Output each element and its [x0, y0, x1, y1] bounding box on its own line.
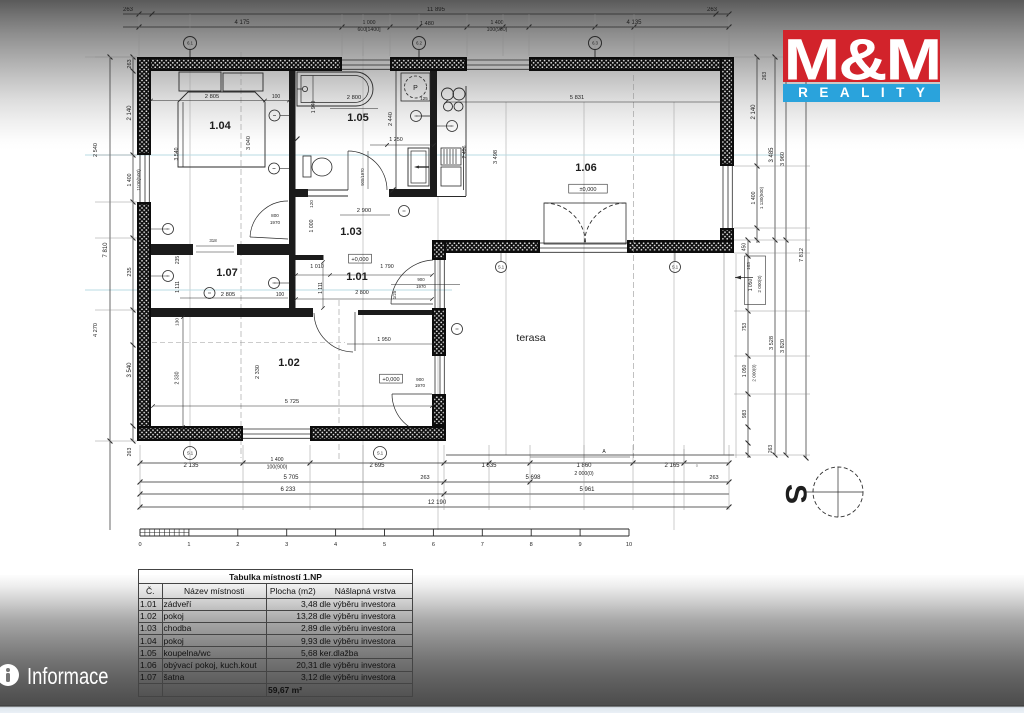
svg-text:5 705: 5 705 — [283, 475, 299, 481]
svg-text:1.06: 1.06 — [575, 162, 596, 174]
svg-text:1 050: 1 050 — [748, 279, 754, 292]
svg-text:3 540: 3 540 — [127, 362, 133, 378]
svg-text:100: 100 — [276, 292, 285, 298]
svg-text:2 135: 2 135 — [183, 463, 199, 469]
svg-text:1 250: 1 250 — [389, 137, 403, 143]
svg-text:100: 100 — [272, 94, 281, 100]
svg-text:1970: 1970 — [270, 220, 281, 225]
svg-text:100(900): 100(900) — [267, 465, 288, 471]
svg-text:1 400: 1 400 — [751, 191, 757, 204]
svg-text:2: 2 — [236, 542, 239, 548]
svg-text:0: 0 — [138, 542, 141, 548]
svg-text:2 000(0): 2 000(0) — [752, 364, 757, 382]
svg-text:3 528: 3 528 — [769, 336, 775, 350]
svg-text:1 950: 1 950 — [377, 337, 391, 343]
svg-text:3 040: 3 040 — [246, 136, 252, 150]
svg-text:2 440: 2 440 — [388, 112, 394, 126]
svg-text:263: 263 — [127, 448, 133, 457]
svg-text:1.05: 1.05 — [347, 112, 368, 124]
svg-text:130: 130 — [175, 318, 181, 326]
svg-text:1 130(500): 1 130(500) — [759, 186, 764, 209]
svg-text:6: 6 — [432, 542, 435, 548]
svg-text:2 900: 2 900 — [357, 208, 372, 214]
svg-text:4: 4 — [334, 542, 337, 548]
svg-text:1970: 1970 — [415, 383, 426, 388]
svg-text:+0,000: +0,000 — [382, 377, 399, 383]
svg-text:263: 263 — [768, 445, 774, 454]
svg-text:2 165: 2 165 — [664, 463, 680, 469]
svg-text:5: 5 — [383, 542, 386, 548]
svg-text:263: 263 — [762, 72, 768, 81]
svg-text:2 330: 2 330 — [255, 365, 261, 379]
svg-text:2 800: 2 800 — [355, 290, 369, 296]
svg-text:+0,000: +0,000 — [351, 257, 368, 263]
svg-text:11 895: 11 895 — [427, 7, 446, 13]
svg-text:6.1: 6.1 — [187, 41, 193, 46]
svg-text:2 800: 2 800 — [347, 95, 362, 101]
svg-text:983: 983 — [742, 410, 748, 419]
svg-text:7 810: 7 810 — [103, 242, 109, 258]
svg-text:S.1: S.1 — [498, 265, 505, 270]
svg-text:9: 9 — [579, 542, 582, 548]
svg-text:1.03: 1.03 — [340, 226, 361, 238]
svg-text:263: 263 — [127, 59, 133, 68]
svg-text:±0,000: ±0,000 — [579, 187, 596, 193]
svg-text:3 498: 3 498 — [493, 150, 499, 164]
svg-text:2 805: 2 805 — [205, 94, 220, 100]
svg-text:263: 263 — [123, 7, 134, 13]
svg-text:235: 235 — [127, 267, 133, 276]
svg-text:6.2: 6.2 — [416, 41, 422, 46]
svg-text:1.07: 1.07 — [216, 267, 237, 279]
svg-text:1/25: 1/25 — [392, 290, 397, 299]
svg-text:1 480: 1 480 — [420, 21, 434, 27]
svg-text:S: S — [779, 484, 812, 504]
svg-text:terasa: terasa — [516, 332, 545, 344]
svg-text:P: P — [413, 85, 418, 92]
svg-text:○: ○ — [696, 463, 699, 468]
svg-text:1 400: 1 400 — [491, 20, 504, 26]
svg-text:1 400: 1 400 — [127, 173, 133, 186]
svg-text:125: 125 — [420, 96, 428, 101]
svg-text:4 270: 4 270 — [93, 323, 99, 337]
svg-text:1 860: 1 860 — [576, 463, 592, 469]
svg-text:S.1: S.1 — [377, 451, 384, 456]
svg-text:103: 103 — [746, 262, 751, 270]
svg-text:1100(500): 1100(500) — [136, 169, 142, 191]
svg-text:2 140: 2 140 — [127, 105, 133, 121]
svg-text:1.01: 1.01 — [346, 271, 367, 283]
svg-text:1 000: 1 000 — [309, 219, 315, 232]
svg-text:8: 8 — [530, 542, 533, 548]
svg-text:1 000: 1 000 — [363, 20, 376, 26]
svg-text:10: 10 — [626, 542, 632, 548]
svg-text:3 960: 3 960 — [780, 152, 786, 166]
svg-text:1970: 1970 — [416, 284, 426, 289]
svg-text:263: 263 — [420, 475, 429, 481]
svg-text:263: 263 — [709, 475, 718, 481]
svg-text:450: 450 — [742, 243, 748, 252]
svg-text:2 330: 2 330 — [175, 371, 181, 384]
svg-text:1 535: 1 535 — [481, 463, 497, 469]
svg-text:4 135: 4 135 — [626, 20, 642, 26]
svg-text:753: 753 — [742, 323, 748, 332]
svg-text:235: 235 — [175, 256, 181, 265]
svg-text:7 812: 7 812 — [799, 248, 805, 262]
svg-text:1 111: 1 111 — [175, 281, 181, 293]
svg-text:318: 318 — [209, 238, 217, 243]
svg-text:6.3: 6.3 — [592, 41, 598, 46]
svg-text:1.04: 1.04 — [209, 120, 231, 132]
svg-text:900: 900 — [417, 277, 425, 282]
svg-text:3 820: 3 820 — [780, 339, 786, 353]
svg-text:800: 800 — [271, 213, 279, 218]
svg-text:2 000(0): 2 000(0) — [757, 275, 762, 293]
svg-text:2 496: 2 496 — [462, 145, 468, 158]
svg-text:5 725: 5 725 — [285, 399, 300, 405]
svg-text:1 400: 1 400 — [271, 457, 284, 463]
svg-text:5 961: 5 961 — [579, 487, 595, 493]
svg-text:5 698: 5 698 — [525, 475, 541, 481]
svg-text:100(900): 100(900) — [487, 27, 508, 33]
svg-text:5 831: 5 831 — [570, 95, 585, 101]
svg-text:4 175: 4 175 — [234, 20, 250, 26]
svg-text:600[1400]: 600[1400] — [357, 27, 381, 33]
svg-text:2 805: 2 805 — [221, 292, 236, 298]
svg-text:6 233: 6 233 — [280, 487, 296, 493]
svg-text:1 010: 1 010 — [310, 264, 324, 270]
svg-text:120: 120 — [309, 200, 314, 208]
svg-text:S.1: S.1 — [672, 265, 679, 270]
svg-text:1 940: 1 940 — [311, 101, 317, 114]
svg-text:900/1970: 900/1970 — [360, 168, 365, 186]
svg-text:A: A — [602, 449, 606, 455]
svg-text:S.1: S.1 — [187, 451, 194, 456]
svg-text:2 695: 2 695 — [369, 463, 385, 469]
svg-text:3: 3 — [285, 542, 288, 548]
svg-text:3 485: 3 485 — [769, 147, 775, 163]
svg-text:3 540: 3 540 — [174, 147, 180, 160]
svg-text:1 050: 1 050 — [742, 365, 748, 378]
svg-text:1.02: 1.02 — [278, 357, 299, 369]
svg-text:M&M: M&M — [784, 30, 940, 82]
svg-text:2 140: 2 140 — [751, 104, 757, 120]
svg-text:263: 263 — [707, 7, 718, 13]
svg-text:1 790: 1 790 — [380, 264, 394, 270]
svg-text:7: 7 — [481, 542, 484, 548]
svg-text:900: 900 — [416, 377, 424, 382]
svg-text:1: 1 — [187, 542, 190, 548]
